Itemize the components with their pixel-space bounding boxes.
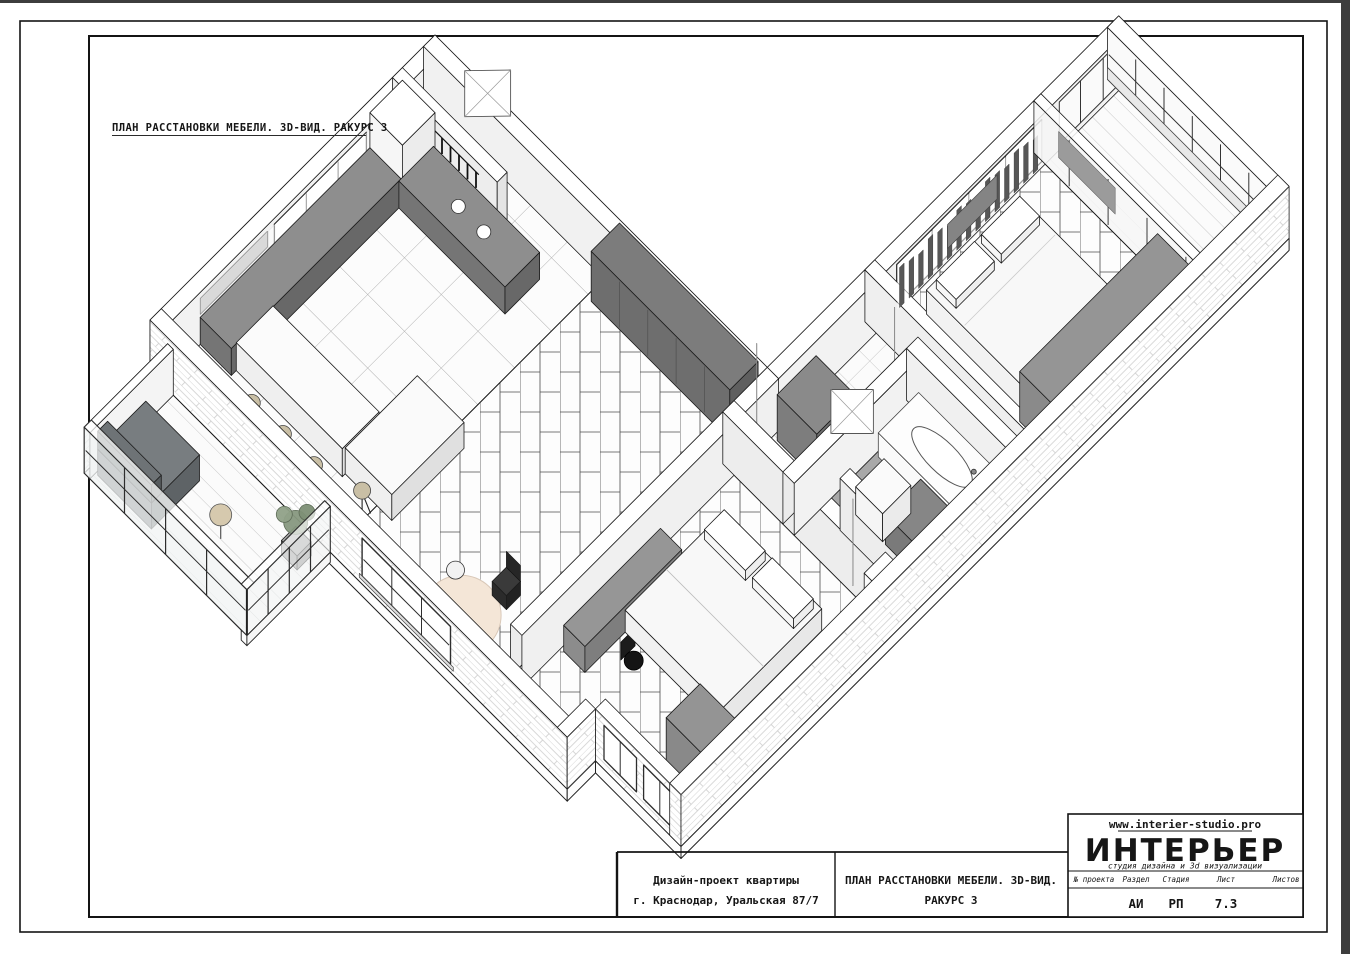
razdel-value: АИ xyxy=(1128,896,1143,911)
col-razdel-label: Раздел xyxy=(1122,875,1150,884)
stadia-value: РП xyxy=(1168,896,1183,911)
sheet-title-line2: РАКУРС 3 xyxy=(925,894,978,907)
sheet-title-line1: ПЛАН РАССТАНОВКИ МЕБЕЛИ. 3D-ВИД. xyxy=(845,874,1057,887)
col-stadia-label: Стадия xyxy=(1162,875,1189,884)
col-project-no-label: № проекта xyxy=(1073,875,1115,884)
project-name-line2: г. Краснодар, Уральская 87/7 xyxy=(633,894,818,907)
view-title: ПЛАН РАССТАНОВКИ МЕБЕЛИ. 3D-ВИД. РАКУРС … xyxy=(112,122,388,134)
col-listov-label: Листов xyxy=(1271,875,1299,884)
col-list-label: Лист xyxy=(1216,875,1236,884)
design-sheet: ПЛАН РАССТАНОВКИ МЕБЕЛИ. 3D-ВИД. РАКУРС … xyxy=(0,0,1350,954)
studio-tagline: студия дизайна и 3d визуализации xyxy=(1108,862,1262,871)
screen-edge-right xyxy=(1341,0,1350,954)
studio-website: www.interier-studio.pro xyxy=(1109,818,1262,831)
screen-edge-top xyxy=(0,0,1350,3)
list-value: 7.3 xyxy=(1215,896,1238,911)
project-name-line1: Дизайн-проект квартиры xyxy=(653,874,799,887)
